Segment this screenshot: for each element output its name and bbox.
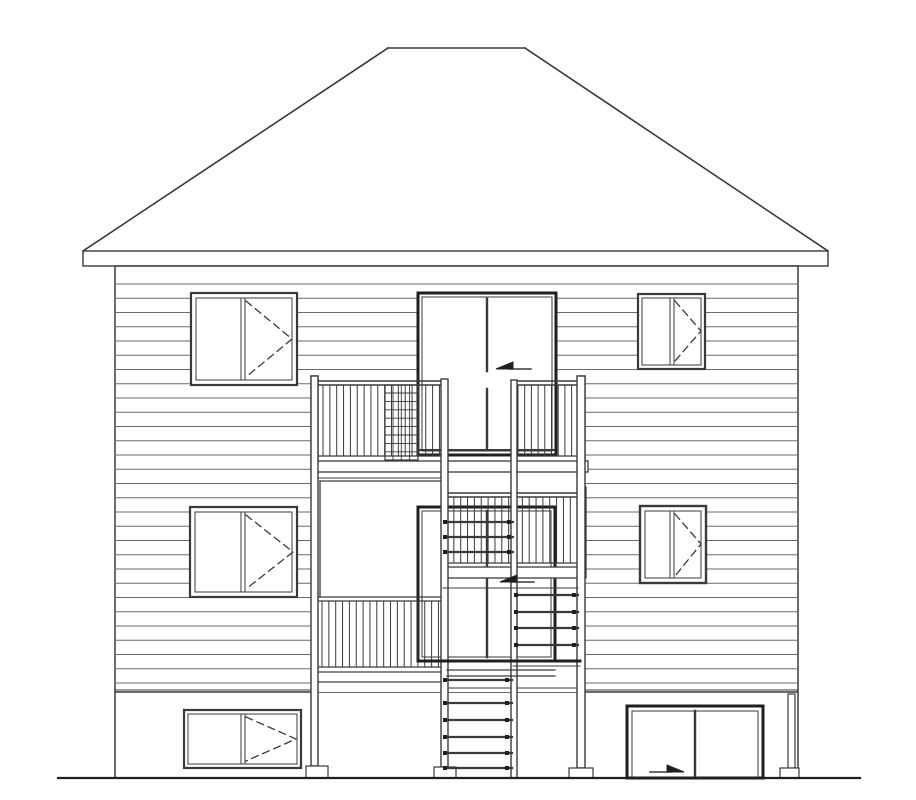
window-top-left [191, 293, 297, 385]
basement-patio-door [627, 706, 763, 778]
window-mid-left [190, 507, 297, 597]
elevation-drawing-page [0, 0, 916, 800]
window-basement-left [184, 710, 301, 768]
window-top-right [638, 294, 705, 369]
sliding-door-third-floor [418, 293, 556, 455]
hip-roof [83, 48, 828, 270]
window-mid-right [640, 506, 706, 583]
rear-elevation-drawing [0, 0, 916, 800]
